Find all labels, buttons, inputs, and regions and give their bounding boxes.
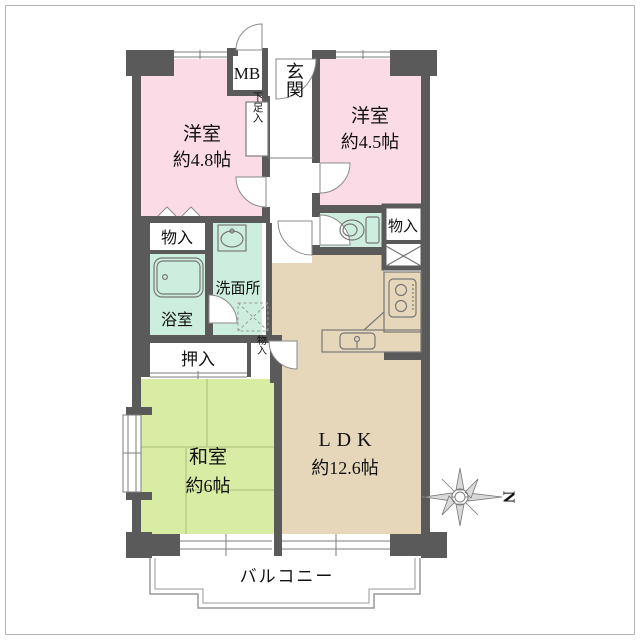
bathroom-label: 浴室 (161, 311, 193, 329)
closet-small-label: 物入 (255, 334, 267, 355)
entrance-label: 玄関 (284, 62, 304, 98)
pipe-space-icon (384, 206, 423, 268)
hallway-door-swing (278, 221, 312, 255)
pillar-bottom-right (421, 532, 447, 558)
sliding-closet-front (150, 371, 247, 379)
meter-box-label: MB (234, 64, 260, 83)
western-room-1-label: 洋室 (183, 123, 221, 145)
compass-north-spike (468, 493, 502, 501)
shoe-cabinet-label: 下足入 (252, 91, 263, 123)
ldk-size: 約12.6帖 (311, 458, 379, 478)
closet-hall-label: 物入 (388, 218, 418, 235)
western-room-1-size: 約4.8帖 (173, 150, 232, 170)
meter-box: MB (227, 46, 268, 96)
ldk-floor (270, 255, 421, 534)
japanese-room-size: 約6帖 (186, 476, 231, 496)
closet-west1-label: 物入 (161, 229, 193, 247)
western-room-2-size: 約4.5帖 (341, 132, 400, 152)
window-japanese-room-side (123, 415, 141, 492)
balcony-label: バルコニー (240, 567, 335, 586)
ldk-label: LDK (318, 429, 377, 451)
compass-north-label: N (500, 491, 519, 504)
pillar-top-right (390, 50, 437, 76)
floor-plan: MB (0, 0, 640, 640)
floor-plan-page: MB (0, 0, 640, 640)
window-ldk-balcony (282, 534, 390, 556)
window-west2-top (336, 50, 390, 59)
compass-rose-icon: N (422, 468, 519, 526)
western-room-2-label: 洋室 (351, 105, 389, 127)
window-japanese-room-balcony (180, 534, 272, 556)
futon-closet-label: 押入 (181, 350, 215, 369)
japanese-room-label: 和室 (189, 446, 227, 468)
window-west1-top (174, 50, 227, 59)
washroom-label: 洗面所 (215, 280, 260, 297)
meter-box-door-swing (236, 24, 262, 50)
